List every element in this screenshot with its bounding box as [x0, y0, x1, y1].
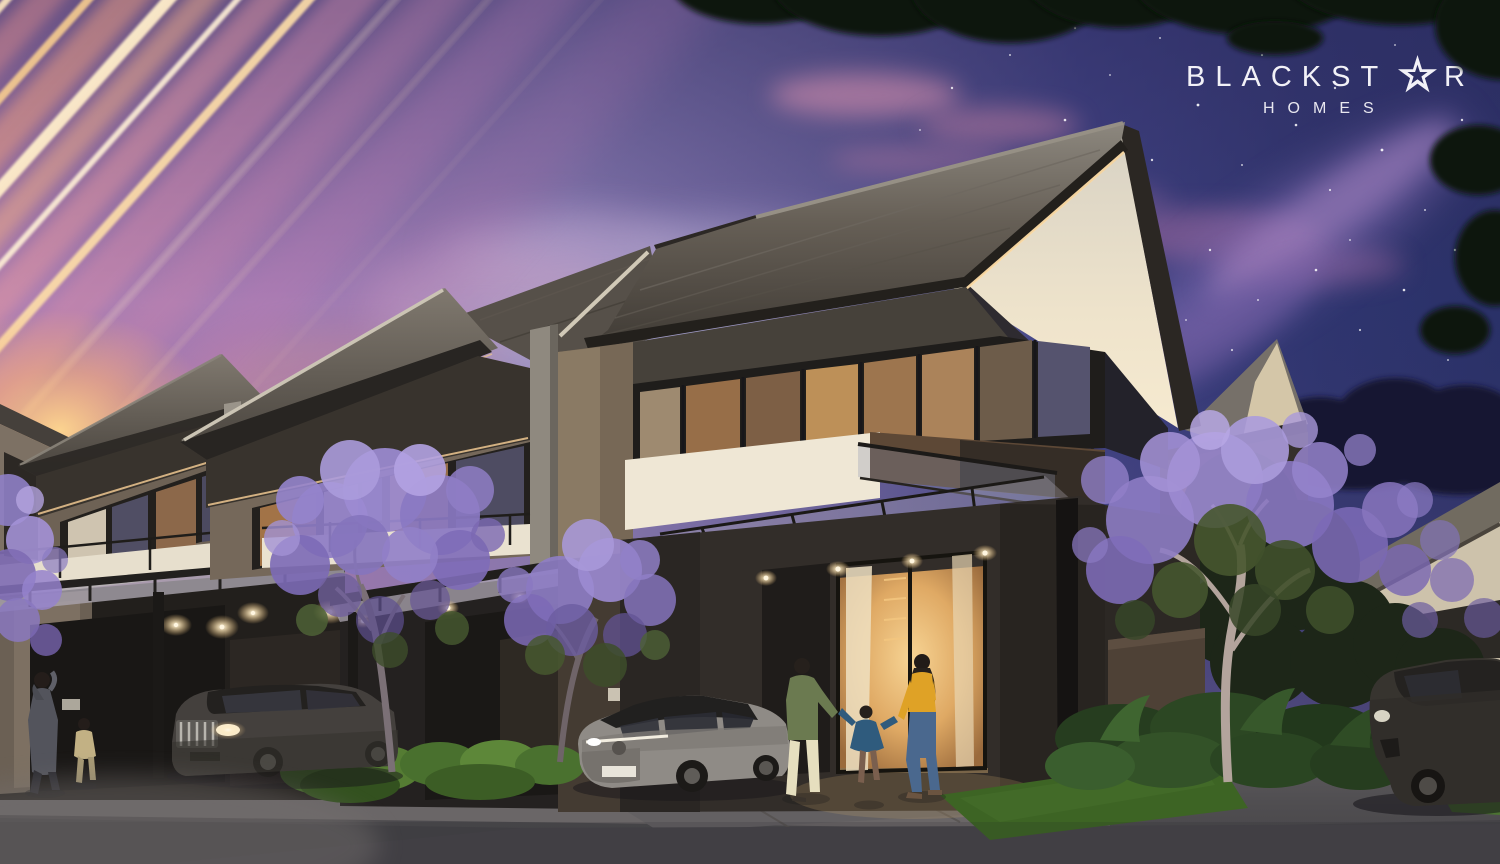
svg-text:BLACKST: BLACKST	[1186, 61, 1388, 93]
svg-text:HOMES: HOMES	[1263, 100, 1387, 117]
